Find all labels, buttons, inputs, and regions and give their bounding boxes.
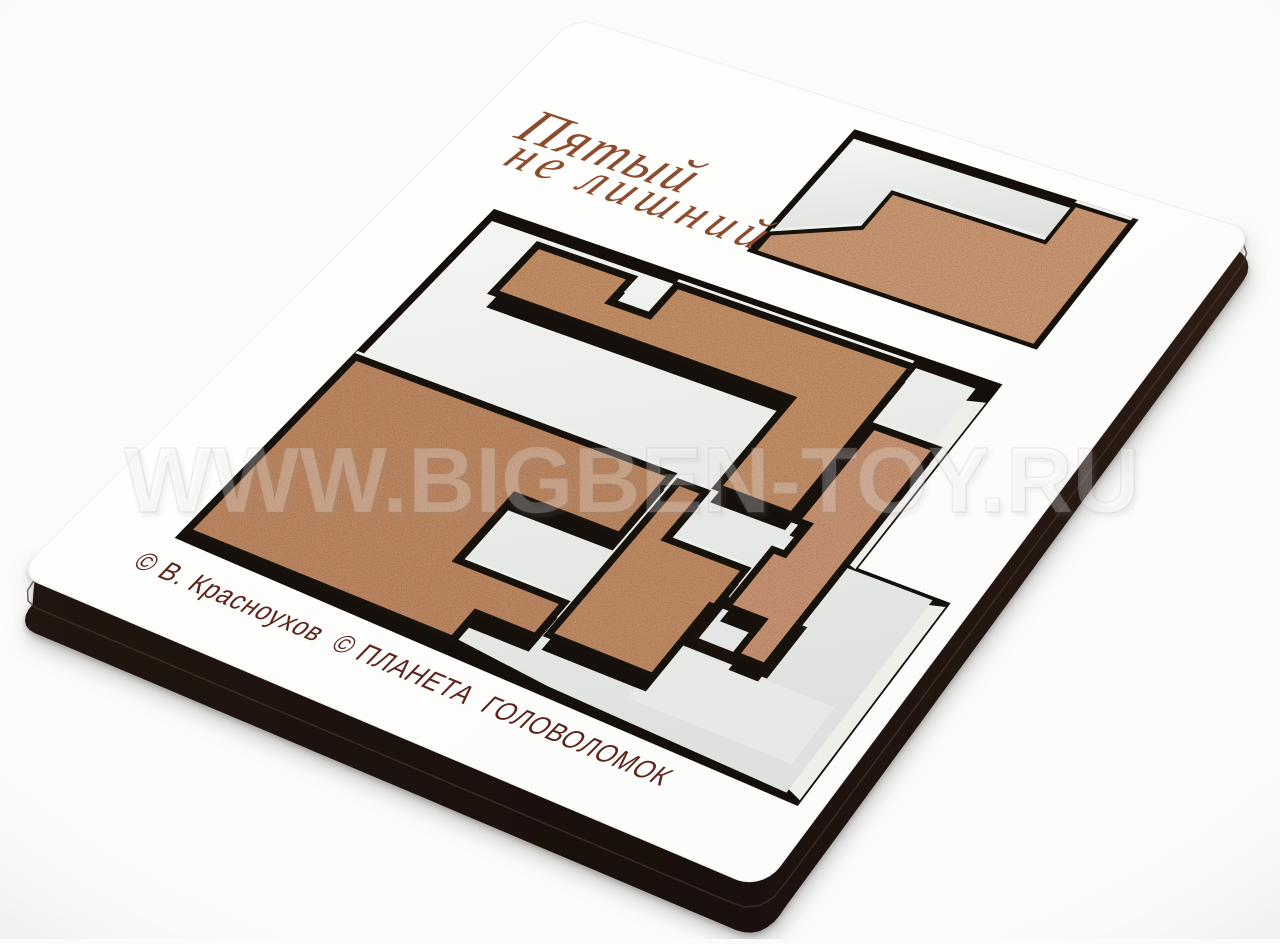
svg-text:WWW.BIGBEN-TOY.RU: WWW.BIGBEN-TOY.RU <box>124 428 1140 532</box>
